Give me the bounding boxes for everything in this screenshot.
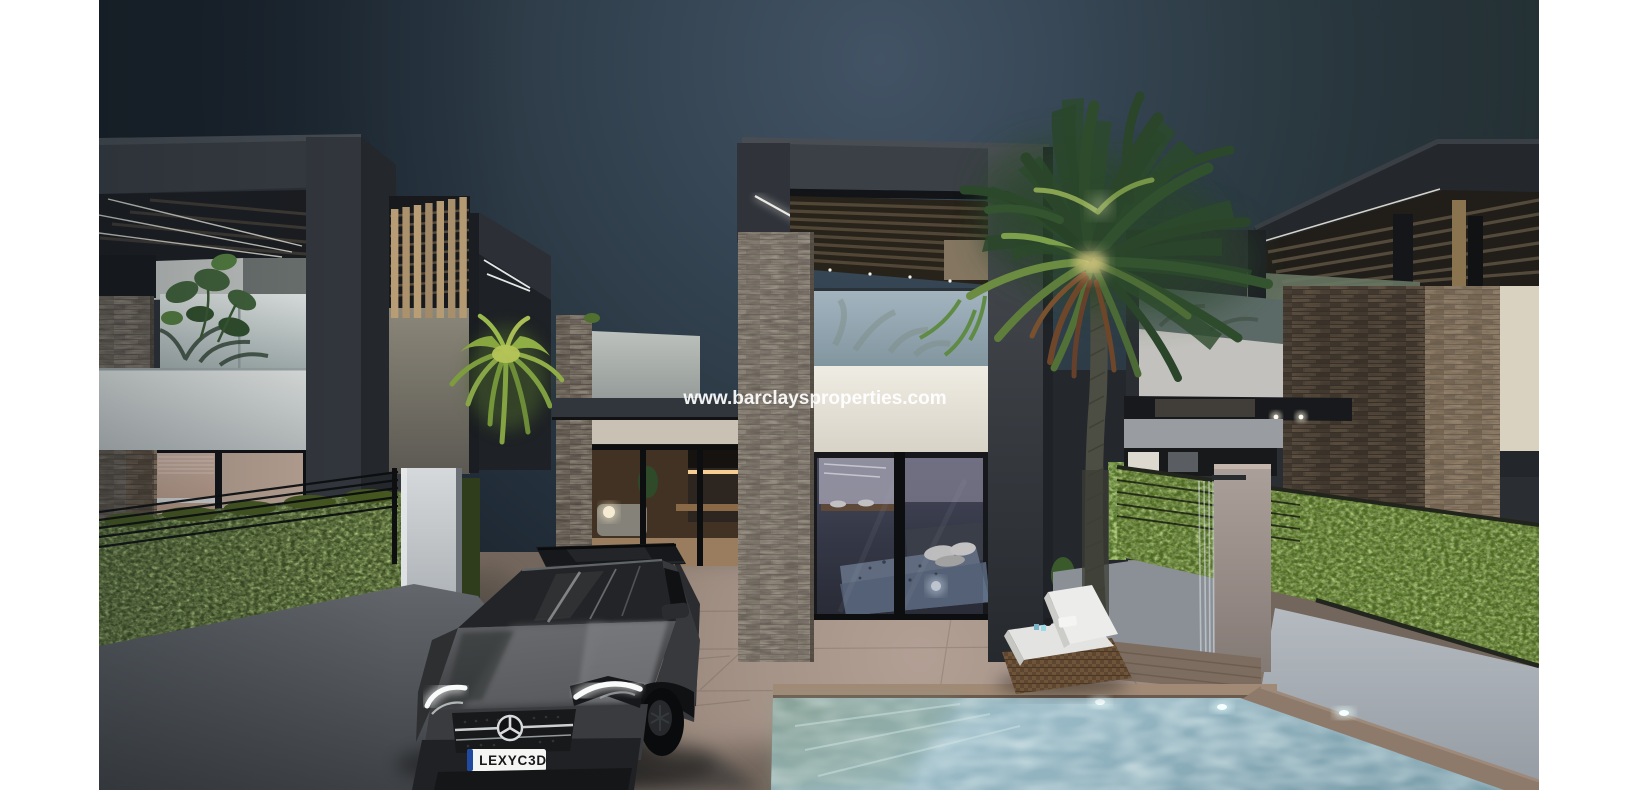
svg-text:www.barclaysproperties.com: www.barclaysproperties.com (682, 388, 946, 409)
svg-text:LEXYC3D: LEXYC3D (479, 753, 547, 768)
